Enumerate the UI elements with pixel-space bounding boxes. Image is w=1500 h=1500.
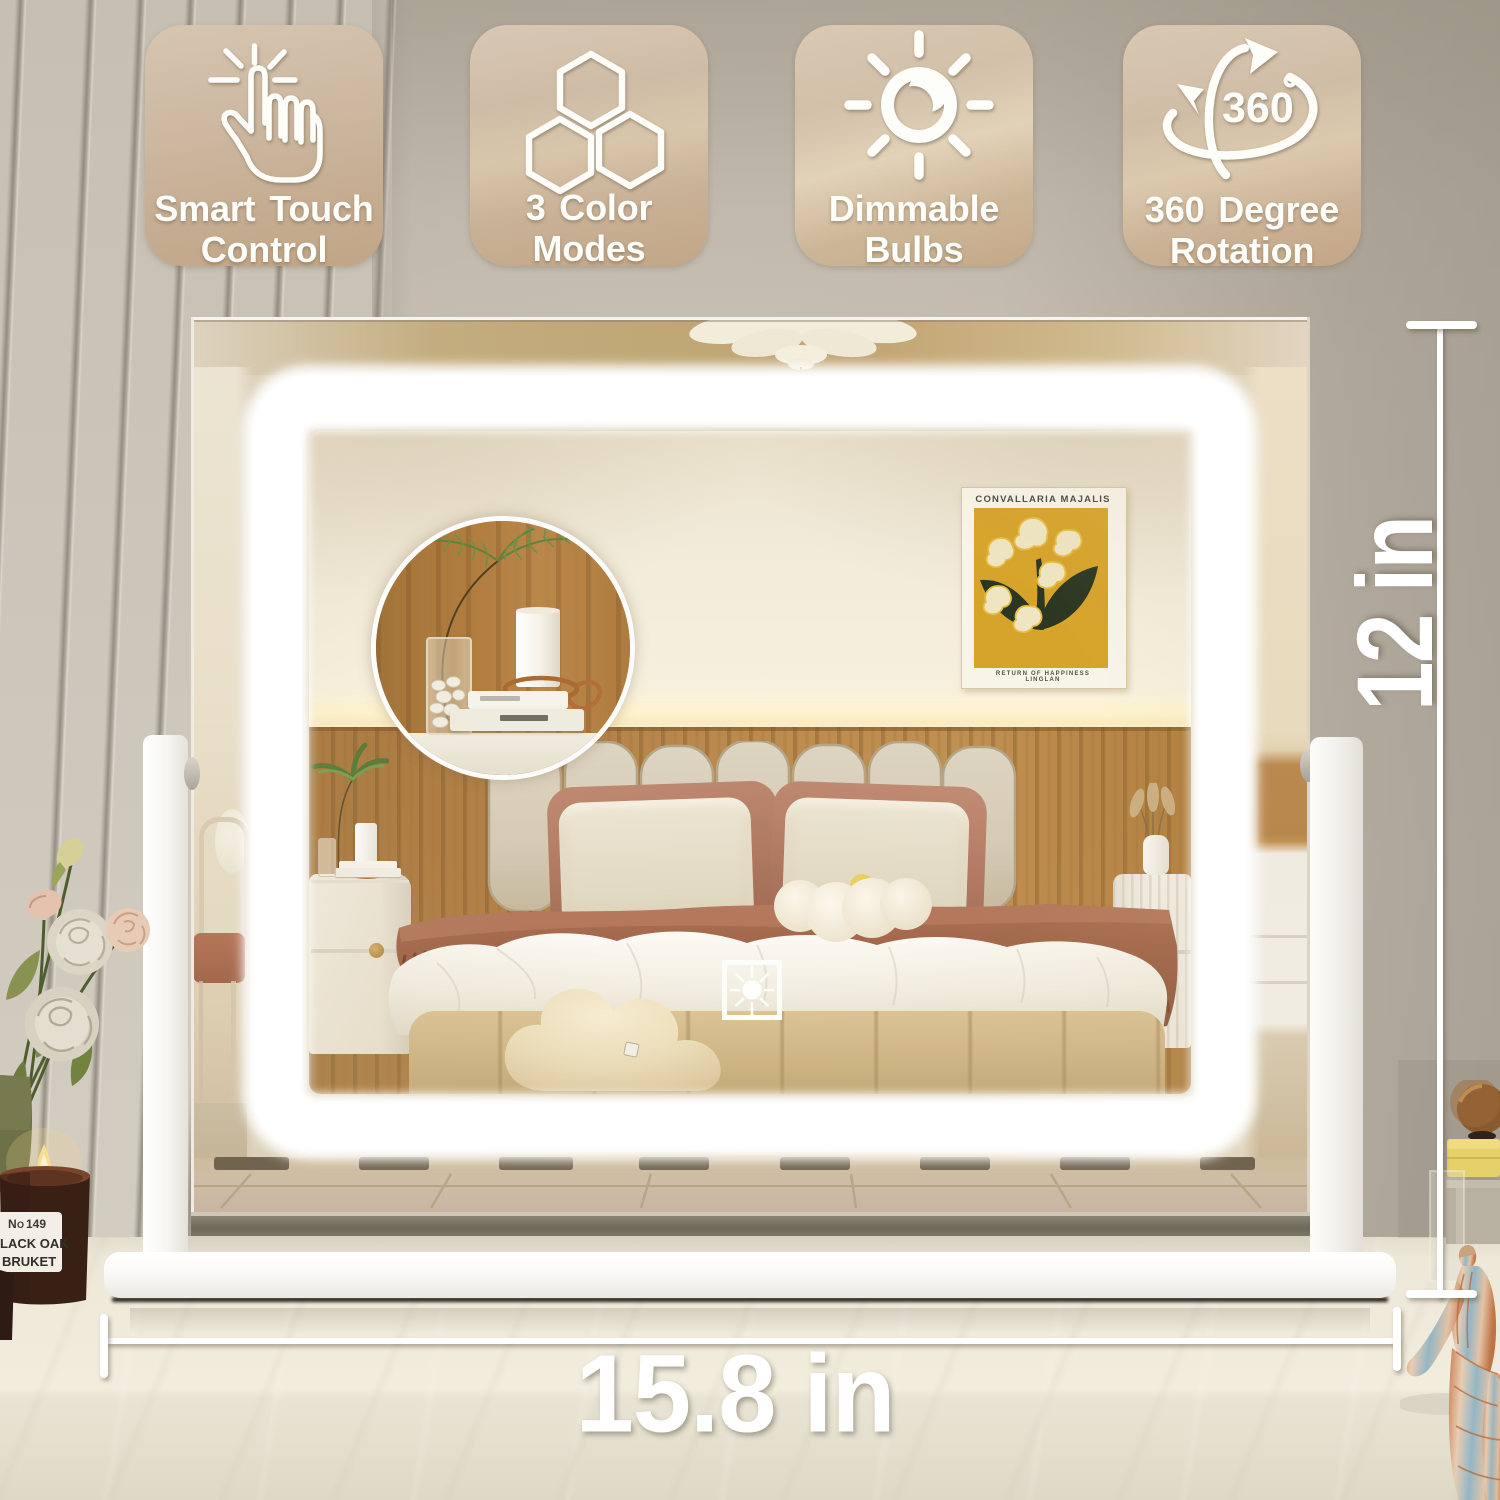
svg-text:O: O	[17, 1220, 24, 1230]
svg-text:N: N	[8, 1217, 17, 1231]
svg-text:149: 149	[26, 1217, 46, 1231]
svg-text:BRUKET: BRUKET	[2, 1254, 56, 1269]
svg-text:LACK OAK: LACK OAK	[0, 1236, 69, 1251]
svg-text:360: 360	[1222, 84, 1294, 132]
